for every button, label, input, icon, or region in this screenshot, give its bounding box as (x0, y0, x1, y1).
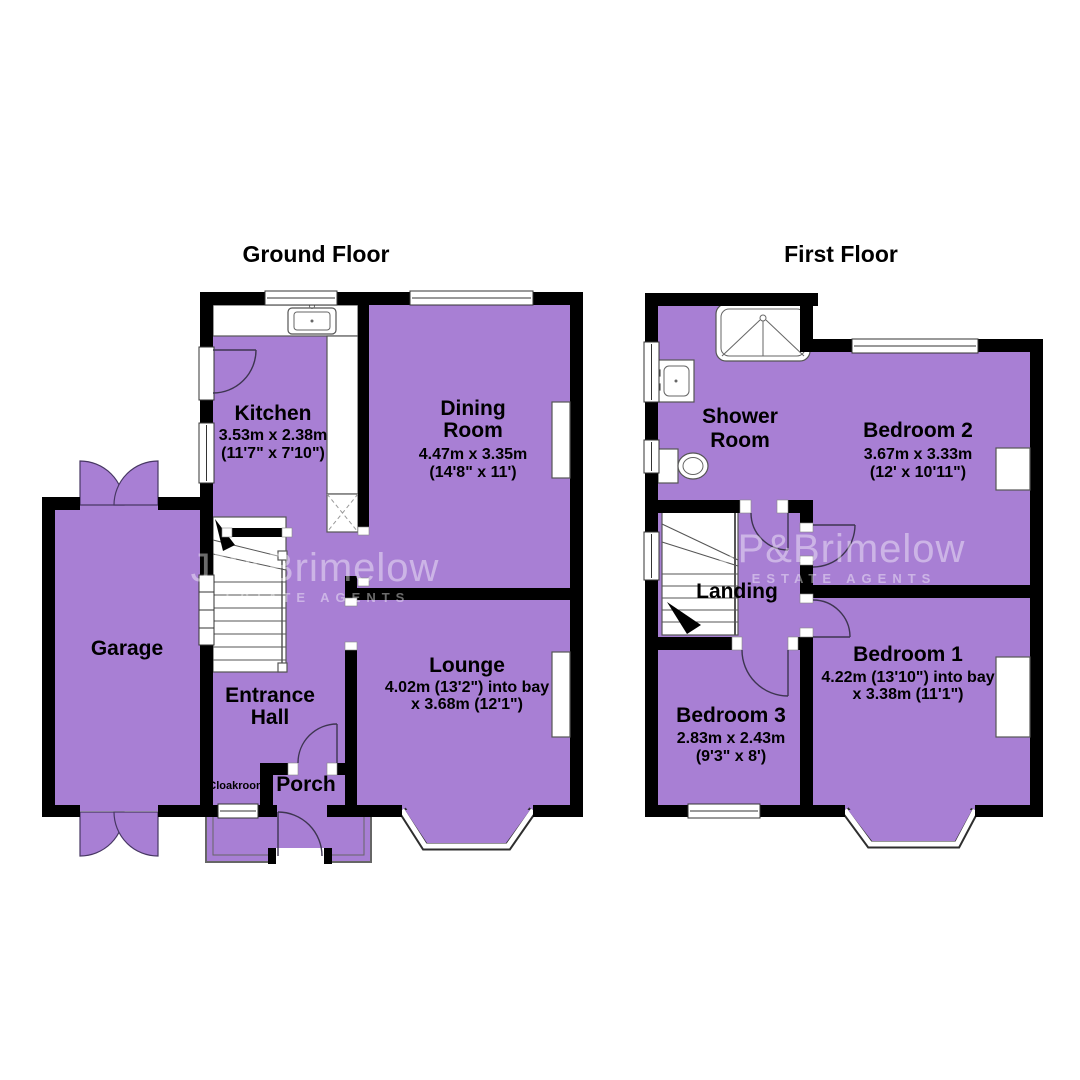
kitchen-dims-ft: (11'7" x 7'10") (221, 445, 325, 462)
dining-dims-ft: (14'8" x 11') (429, 464, 516, 481)
room-label-shower: Shower Room (702, 405, 778, 452)
bedroom1-dims-2: x 3.38m (11'1") (852, 686, 963, 703)
shower-window-1 (644, 342, 659, 402)
shower-tray-icon (716, 304, 810, 361)
shower-name-2: Room (710, 429, 770, 452)
door-jamb (740, 500, 751, 513)
bedroom3-window (688, 804, 760, 818)
door-jamb (358, 527, 369, 535)
landing-window (644, 532, 659, 580)
first-floor-title: First Floor (784, 241, 898, 267)
dining-name-2: Room (443, 419, 503, 442)
kitchen-window (265, 291, 337, 305)
porch-name: Porch (276, 773, 336, 796)
front-door-opening (276, 848, 324, 865)
door-jamb (777, 500, 788, 513)
door-jamb (800, 594, 813, 603)
ground-floor-title: Ground Floor (243, 241, 390, 267)
sink-icon (655, 360, 694, 402)
dining-name-1: Dining (440, 397, 505, 420)
first-floor-plan: Shower Room Bedroom 2 3.67m x 3.33m (12'… (644, 293, 1043, 844)
door-jamb (800, 628, 813, 637)
lounge-dims-1: 4.02m (13'2") into bay (385, 679, 549, 696)
lounge-dims-2: x 3.68m (12'1") (411, 696, 523, 713)
room-label-kitchen: Kitchen 3.53m x 2.38m (11'7" x 7'10") (219, 402, 328, 462)
bedroom1-furniture (996, 657, 1030, 737)
watermark-brand: JP&Brimelow (191, 546, 440, 590)
ground-floor-plan: Kitchen 3.53m x 2.38m (11'7" x 7'10") Di… (42, 291, 583, 865)
shower-window-2 (644, 440, 659, 473)
bedroom2-dims-ft: (12' x 10'11") (870, 464, 966, 481)
kitchen-sink-icon (288, 304, 336, 335)
dining-dims-m: 4.47m x 3.35m (419, 446, 528, 463)
garage-name: Garage (91, 637, 163, 660)
kitchen-dims-m: 3.53m x 2.38m (219, 427, 328, 444)
watermark-brand: JP&Brimelow (717, 527, 966, 571)
lounge-name: Lounge (429, 654, 505, 677)
kitchen-name: Kitchen (234, 402, 311, 425)
lounge-furniture (552, 652, 570, 737)
bedroom1-name: Bedroom 1 (853, 643, 963, 666)
watermark-ground: JP&Brimelow ESTATE AGENTS (191, 546, 440, 605)
bedroom2-dims-m: 3.67m x 3.33m (864, 446, 973, 463)
floorplan-page: Kitchen 3.53m x 2.38m (11'7" x 7'10") Di… (0, 0, 1080, 1080)
room-label-bedroom2: Bedroom 2 3.67m x 3.33m (12' x 10'11") (863, 419, 973, 481)
kitchen-side-window (199, 423, 214, 483)
cloakroom-name: Cloakroom (208, 780, 266, 792)
bedroom2-window (852, 339, 978, 353)
door-jamb (732, 637, 742, 650)
dining-window (410, 291, 533, 305)
garage-door-top (80, 461, 158, 505)
kitchen-side-door-opening (199, 347, 214, 400)
bedroom3-dims-m: 2.83m x 2.43m (677, 730, 786, 747)
shower-name-1: Shower (702, 405, 778, 428)
lounge-bay-window (402, 810, 533, 846)
cloakroom-window (218, 804, 258, 818)
bedroom2-furniture (996, 448, 1030, 490)
bedroom1-bay-window (845, 810, 975, 844)
hall-name-1: Entrance (225, 684, 315, 707)
watermark-tagline: ESTATE AGENTS (752, 571, 937, 586)
dining-furniture (552, 402, 570, 478)
garage-door-bottom (80, 812, 158, 856)
door-jamb (788, 637, 798, 650)
watermark-first: JP&Brimelow ESTATE AGENTS (717, 527, 966, 586)
door-jamb (282, 528, 292, 537)
floorplan-drawing: Kitchen 3.53m x 2.38m (11'7" x 7'10") Di… (0, 0, 1080, 1080)
bedroom1-dims-1: 4.22m (13'10") into bay (821, 669, 994, 686)
bedroom3-dims-ft: (9'3" x 8') (696, 748, 766, 765)
door-jamb (222, 528, 232, 537)
bedroom2-name: Bedroom 2 (863, 419, 973, 442)
watermark-tagline: ESTATE AGENTS (226, 590, 411, 605)
door-jamb (345, 642, 357, 650)
bedroom3-name: Bedroom 3 (676, 704, 786, 727)
hall-name-2: Hall (251, 706, 290, 729)
